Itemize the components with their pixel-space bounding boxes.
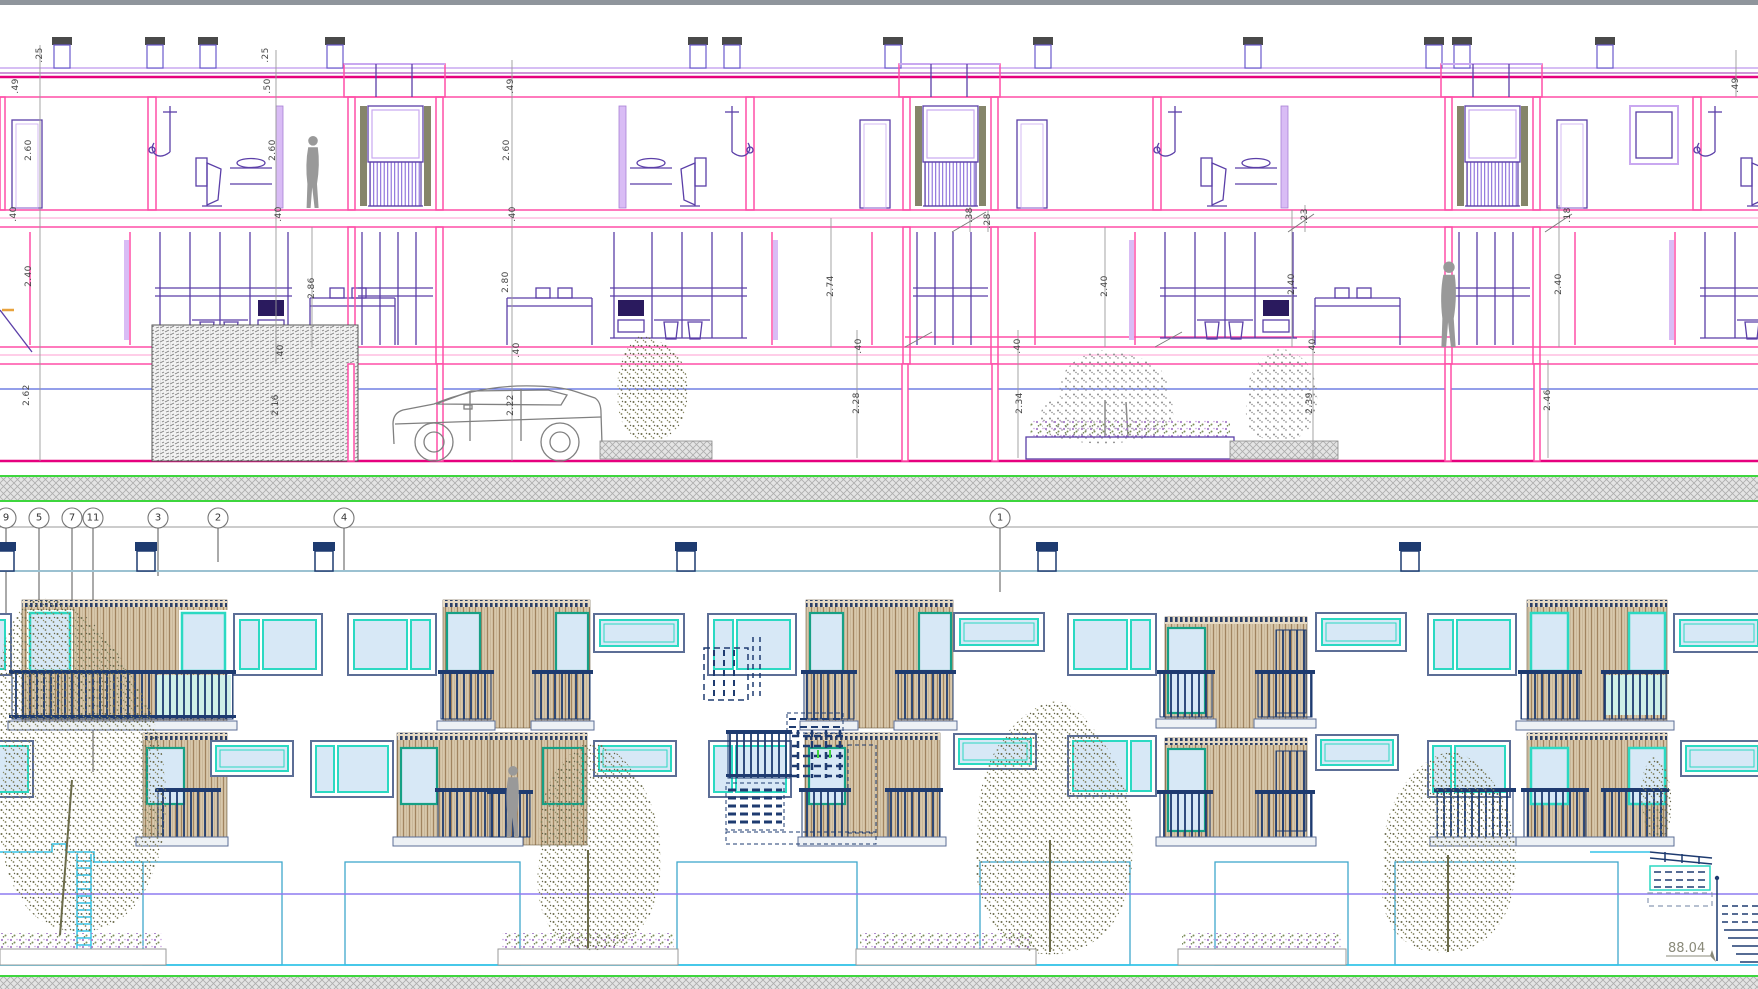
grid-bubble-label: 2 [215, 513, 221, 524]
grid-bubble-label: 1 [997, 513, 1003, 524]
dimension-label: 2.46 [1543, 389, 1553, 411]
section-window [1630, 106, 1678, 164]
section-roof-lines [0, 68, 1758, 77]
dimension-label: .40 [508, 206, 518, 222]
dimension-label: 2.40 [24, 265, 34, 287]
section-garage-level [0, 310, 1758, 461]
ground-strip-lower [0, 976, 1758, 989]
dimension-label: .40 [276, 344, 286, 360]
grid-bubble-label: 9 [3, 513, 9, 524]
dimension-label: .40 [1013, 338, 1023, 354]
dimension-label: .25 [261, 47, 271, 63]
dimension-label: 2.40 [1100, 275, 1110, 297]
ground-strip-upper [0, 476, 1758, 502]
level-value: 88.04 [1668, 941, 1705, 956]
elevation-floor1-modules [0, 600, 1758, 728]
dimension-label: 2.60 [24, 139, 34, 161]
dimension-label: .49 [1731, 77, 1741, 93]
dimension-label: 2.16 [271, 394, 281, 416]
car [393, 386, 602, 461]
dimension-label: .50 [263, 78, 273, 94]
elevation-chimneys [0, 542, 1421, 571]
dimension-label: .28 [983, 213, 993, 229]
section-view: .25 .49 2.60 .40 2.40 2.62 .25 .50 2.60 … [0, 0, 1758, 502]
dimension-label: 2.34 [1015, 392, 1025, 414]
dimension-label: 2.62 [22, 384, 32, 406]
grid-bubble-label: 11 [87, 513, 100, 524]
dimension-label: .18 [1563, 207, 1573, 223]
elevation-floor1-balconies [8, 670, 1674, 730]
dimension-label: 2.86 [307, 277, 317, 299]
level-marker: 88.04 [1666, 941, 1716, 962]
dimension-label: .38 [965, 207, 975, 223]
section-chimneys [52, 37, 1615, 68]
garage-planting [600, 335, 1338, 459]
dimension-label: 2.60 [268, 139, 278, 161]
elevation-planters [0, 933, 1346, 965]
dimension-label: .40 [9, 206, 19, 222]
dimension-label: .49 [11, 78, 21, 94]
dimension-label: 2.60 [502, 139, 512, 161]
sheet-top-edge [0, 0, 1758, 5]
garage-columns [348, 364, 1540, 461]
architectural-drawing-sheet: .25 .49 2.60 .40 2.40 2.62 .25 .50 2.60 … [0, 0, 1758, 989]
dimension-label: 2.22 [506, 394, 516, 416]
dimension-label: 2.40 [1287, 273, 1297, 295]
ramp-line [0, 310, 32, 352]
drawing-canvas: .25 .49 2.60 .40 2.40 2.62 .25 .50 2.60 … [0, 0, 1758, 989]
grid-bubble-label: 3 [155, 513, 161, 524]
dimension-label: .40 [274, 206, 284, 222]
hatched-block-wall [152, 325, 358, 461]
dimension-label: 2.80 [501, 271, 511, 293]
elevation-view: 9 5 7 11 3 2 4 1 [0, 508, 1758, 989]
dimension-label: .40 [512, 342, 522, 358]
dimension-label: 2.40 [1554, 273, 1564, 295]
dimension-label: .40 [1308, 338, 1318, 354]
section-left-wall [0, 97, 5, 210]
dimension-label: .40 [854, 338, 864, 354]
dimension-label: 2.28 [852, 392, 862, 414]
grid-bubble-label: 4 [341, 513, 347, 524]
grid-bubble-label: 5 [36, 513, 42, 524]
dimension-label: 2.39 [1305, 392, 1315, 414]
dimension-label: .25 [35, 47, 45, 63]
grid-bubble-label: 7 [69, 513, 75, 524]
dimension-label: .23 [1300, 208, 1310, 224]
dimension-label: .49 [506, 78, 516, 94]
dimension-label: 2.74 [826, 275, 836, 297]
